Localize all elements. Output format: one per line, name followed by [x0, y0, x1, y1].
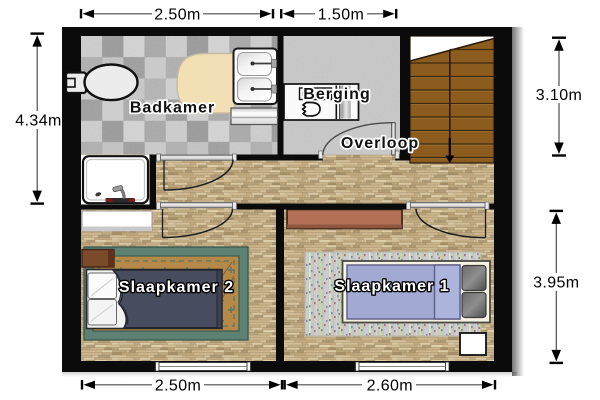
svg-text:4.34m: 4.34m — [15, 113, 61, 130]
svg-text:Badkamer: Badkamer — [130, 100, 215, 117]
svg-text:3.95m: 3.95m — [533, 275, 579, 292]
svg-text:Overloop: Overloop — [341, 135, 419, 152]
svg-text:Slaapkamer 2: Slaapkamer 2 — [119, 279, 234, 296]
svg-text:3.10m: 3.10m — [536, 87, 582, 104]
svg-text:2.50m: 2.50m — [155, 377, 201, 394]
svg-text:Berging: Berging — [303, 86, 370, 103]
svg-text:Slaapkamer 1: Slaapkamer 1 — [334, 278, 449, 295]
svg-text:2.50m: 2.50m — [154, 6, 200, 23]
svg-text:1.50m: 1.50m — [318, 6, 364, 23]
svg-text:2.60m: 2.60m — [367, 377, 413, 394]
